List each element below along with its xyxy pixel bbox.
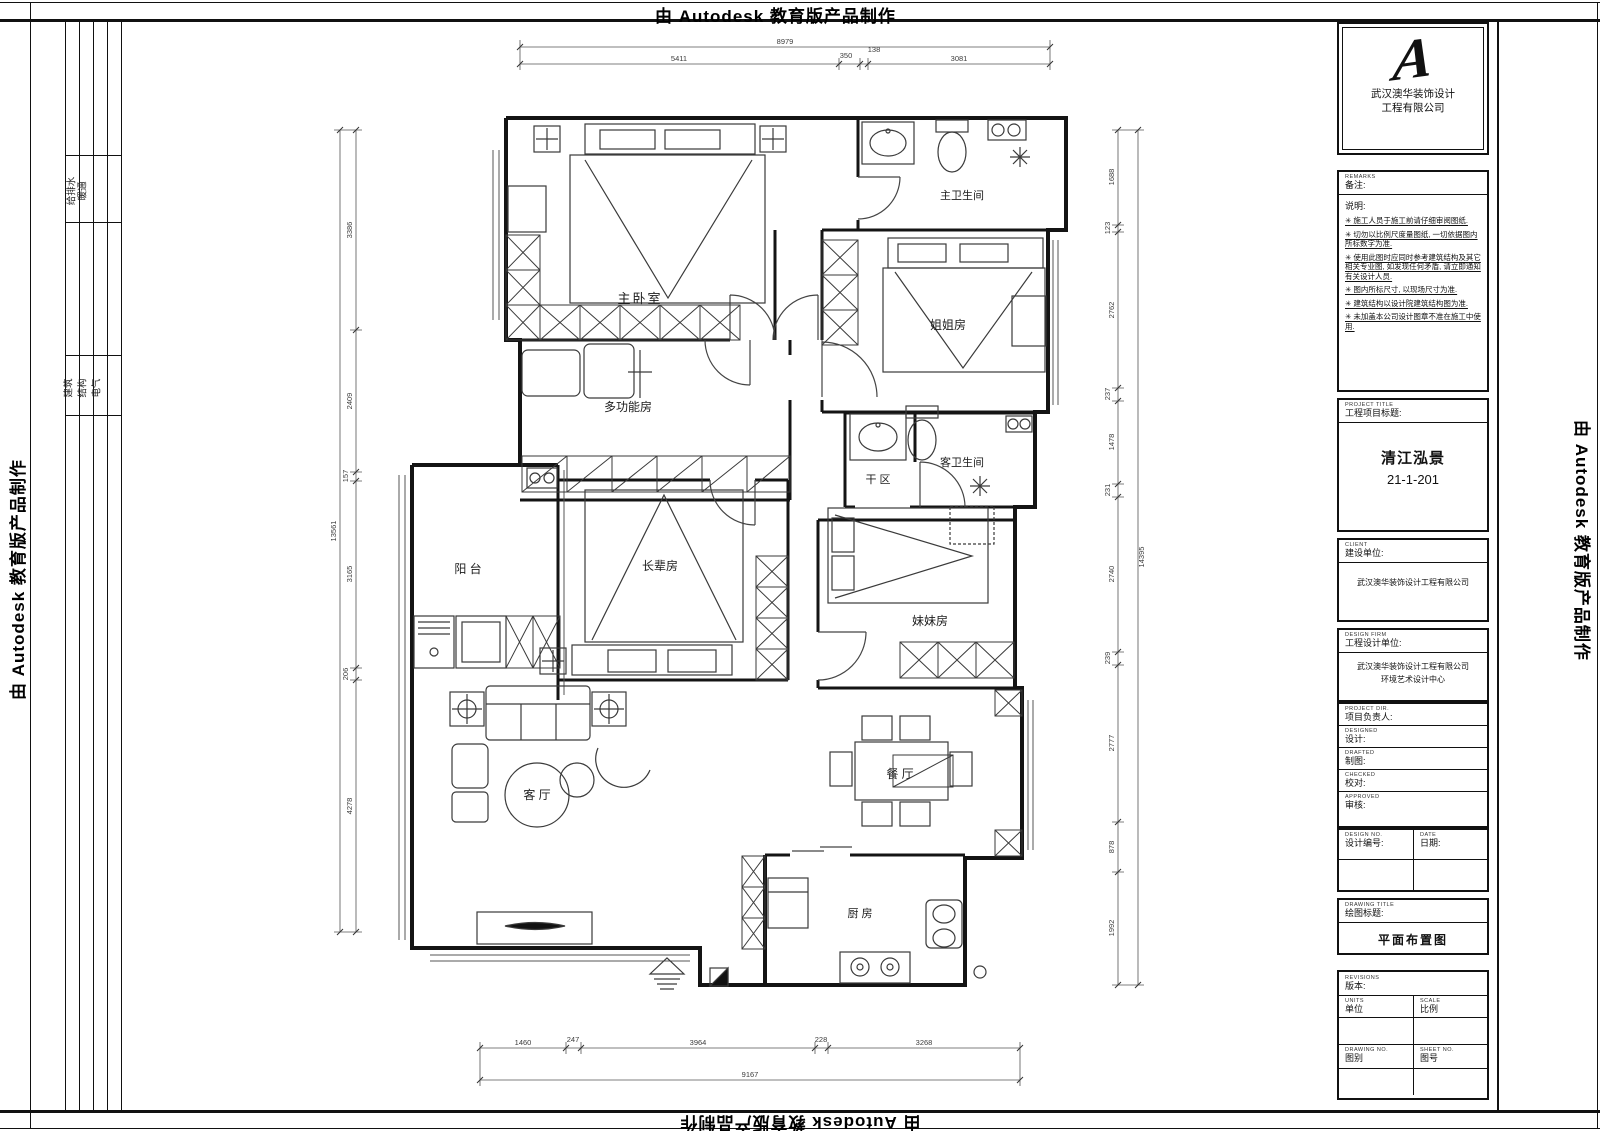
designed-label: 设计: xyxy=(1345,734,1483,745)
dim-right-seg2: 2762 xyxy=(1107,302,1116,319)
dim-bottom-seg2: 3964 xyxy=(690,1038,707,1047)
drawing-title: 平面布置图 xyxy=(1339,931,1487,948)
note-item: ✳ 使用此图时应同时参考建筑结构及其它相关专业图, 如发现任何矛盾, 请立即通知… xyxy=(1345,253,1481,282)
remarks-box: REMARKS 备注: 说明: ✳ 施工人员于施工前请仔细审阅图纸. ✳ 切勿以… xyxy=(1337,170,1489,392)
dim-top-seg1: 350 xyxy=(840,51,853,60)
dim-right-seg5: 231 xyxy=(1103,484,1112,497)
room-label-elder-room: 长辈房 xyxy=(642,558,678,573)
dim-left-total: 13561 xyxy=(329,521,338,542)
note-item: ✳ 切勿以比例尺度量图纸, 一切依据图内所标数字为准. xyxy=(1345,230,1481,249)
revisions-label: 版本: xyxy=(1345,981,1483,992)
project-title-box: PROJECT TITLE 工程项目标题: 清江泓景 21-1-201 xyxy=(1337,398,1489,532)
dim-left-seg0: 3386 xyxy=(345,222,354,239)
dim-left-seg2: 157 xyxy=(341,470,350,483)
remarks-label: 备注: xyxy=(1345,180,1483,191)
approved-label: 审核: xyxy=(1345,800,1483,811)
dim-left-seg3: 3165 xyxy=(345,566,354,583)
design-firm-box: DESIGN FIRM 工程设计单位: 武汉澳华装饰设计工程有限公司 环境艺术设… xyxy=(1337,628,1489,702)
dim-top-seg3: 3081 xyxy=(951,54,968,63)
note-item: ✳ 建筑结构以设计院建筑结构图为准. xyxy=(1345,299,1481,309)
dim-bottom-seg0: 1460 xyxy=(515,1038,532,1047)
dim-right-seg7: 239 xyxy=(1103,652,1112,665)
dim-right-seg1: 123 xyxy=(1103,222,1112,235)
company-name-line2: 工程有限公司 xyxy=(1343,102,1483,116)
client-name: 武汉澳华装饰设计工程有限公司 xyxy=(1339,577,1487,588)
dim-right-seg8: 2777 xyxy=(1107,735,1116,752)
drawing-no-label: 图别 xyxy=(1345,1053,1411,1064)
notes-title: 说明: xyxy=(1345,199,1481,212)
room-label-multi-function: 多功能房 xyxy=(604,399,652,414)
dim-top-total: 8979 xyxy=(777,37,794,46)
dim-right-seg4: 1478 xyxy=(1107,434,1116,451)
room-labels: 主卧室 主卫生间 姐姐房 多功能房 干 区 客卫生间 阳 台 长辈房 妹妹房 客… xyxy=(454,188,984,920)
dim-top-seg2: 138 xyxy=(868,45,881,54)
scale-label: 比例 xyxy=(1420,1004,1485,1015)
design-no-label: 设计编号: xyxy=(1345,838,1411,849)
client-label: 建设单位: xyxy=(1345,548,1483,559)
personnel-box: PROJECT DIR. 项目负责人: DESIGNED 设计: DRAFTED… xyxy=(1337,702,1489,828)
note-item: ✳ 未加盖本公司设计图章不准在施工中使用. xyxy=(1345,312,1481,331)
firm-name-line2: 环境艺术设计中心 xyxy=(1339,674,1487,685)
drawing-title-box: DRAWING TITLE 绘图标题: 平面布置图 xyxy=(1337,898,1489,955)
dim-bottom-seg4: 3268 xyxy=(916,1038,933,1047)
dim-right-seg10: 1992 xyxy=(1107,920,1116,937)
room-label-sister-elder: 姐姐房 xyxy=(930,317,966,332)
exterior-walls xyxy=(412,118,1066,985)
dim-right-seg9: 878 xyxy=(1107,841,1116,854)
client-box: CLIENT 建设单位: 武汉澳华装饰设计工程有限公司 xyxy=(1337,538,1489,622)
room-label-master-bedroom: 主卧室 xyxy=(617,291,662,306)
dim-bottom-seg1: 247 xyxy=(567,1035,580,1044)
dim-right-seg0: 1688 xyxy=(1107,169,1116,186)
room-label-balcony: 阳 台 xyxy=(454,561,481,576)
room-label-sister-younger: 妹妹房 xyxy=(912,613,948,628)
project-dir-label: 项目负责人: xyxy=(1345,712,1483,723)
sheet-no-label: 图号 xyxy=(1420,1053,1485,1064)
room-label-kitchen: 厨 房 xyxy=(847,907,872,920)
company-logo-icon: A xyxy=(1340,21,1487,98)
design-no-date-box: DESIGN NO. 设计编号: DATE 日期: xyxy=(1337,828,1489,892)
revision-sheet-box: REVISIONS 版本: UNITS 单位 SCALE 比例 DRAWING … xyxy=(1337,970,1489,1100)
dim-bottom-seg3: 228 xyxy=(815,1035,828,1044)
dim-bottom-total: 9167 xyxy=(742,1070,759,1079)
room-label-living: 客 厅 xyxy=(523,787,550,802)
date-label: 日期: xyxy=(1420,838,1485,849)
company-logo-box: A 武汉澳华装饰设计 工程有限公司 xyxy=(1337,22,1489,155)
project-label: 工程项目标题: xyxy=(1345,408,1483,419)
dimension-labels: 8979 5411 350 138 3081 1460 247 3964 228… xyxy=(329,37,1146,1079)
room-label-master-bath: 主卫生间 xyxy=(940,188,984,202)
dim-left-seg4: 206 xyxy=(341,668,350,681)
units-label: 单位 xyxy=(1345,1004,1411,1015)
dim-top-seg0: 5411 xyxy=(671,54,687,63)
windows xyxy=(399,150,1058,961)
dim-right-seg6: 2740 xyxy=(1107,566,1116,583)
firm-name-line1: 武汉澳华装饰设计工程有限公司 xyxy=(1339,661,1487,672)
room-label-dry-area: 干 区 xyxy=(865,474,890,486)
dim-left-seg5: 4278 xyxy=(345,798,354,815)
furniture xyxy=(414,120,1046,989)
room-label-guest-bath: 客卫生间 xyxy=(940,455,984,469)
note-item: ✳ 图内所标尺寸, 以现场尺寸为准. xyxy=(1345,285,1481,295)
drawing-sheet: 由 Autodesk 教育版产品制作 由 Autodesk 教育版产品制作 由 … xyxy=(0,0,1600,1131)
checked-label: 校对: xyxy=(1345,778,1483,789)
doors xyxy=(705,177,965,851)
drafted-label: 制图: xyxy=(1345,756,1483,767)
firm-label: 工程设计单位: xyxy=(1345,638,1483,649)
project-name: 清江泓景 xyxy=(1339,447,1487,468)
interior-walls xyxy=(506,118,1048,855)
note-item: ✳ 施工人员于施工前请仔细审阅图纸. xyxy=(1345,216,1481,226)
dim-left-seg1: 2409 xyxy=(345,393,354,410)
dim-right-seg3: 237 xyxy=(1103,388,1112,401)
drawing-title-label: 绘图标题: xyxy=(1345,908,1483,919)
room-label-dining: 餐 厅 xyxy=(886,766,913,781)
project-number: 21-1-201 xyxy=(1339,472,1487,487)
dim-right-total: 14395 xyxy=(1137,547,1146,568)
